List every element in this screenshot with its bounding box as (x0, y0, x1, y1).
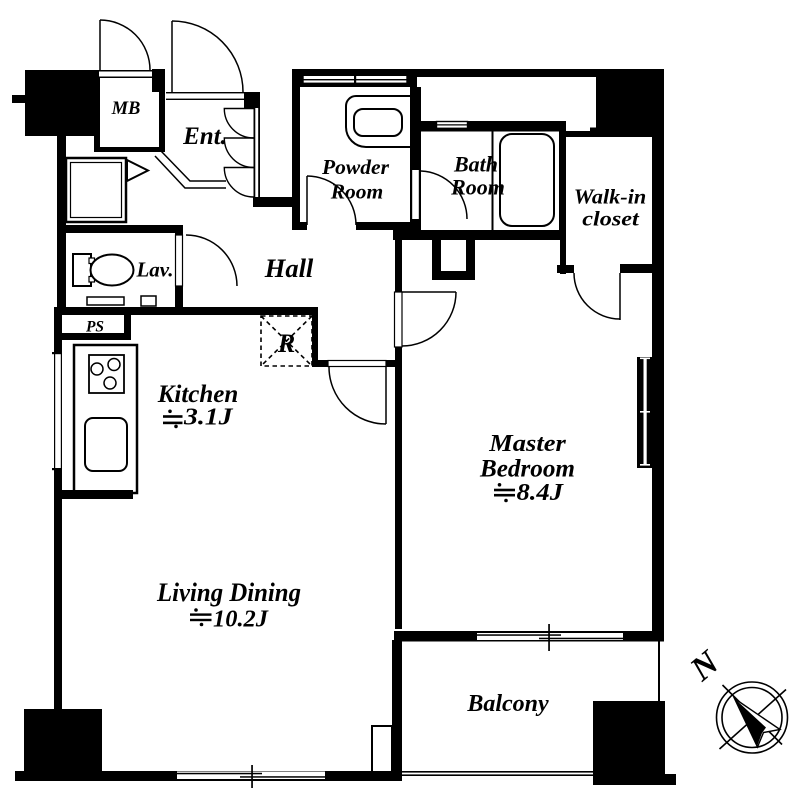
svg-text:R: R (277, 329, 295, 358)
svg-text:3.1J: 3.1J (183, 405, 234, 431)
svg-text:Walk-in: Walk-in (574, 185, 647, 209)
svg-text:Hall: Hall (264, 253, 314, 283)
svg-text:MB: MB (111, 99, 141, 119)
svg-text:Lav.: Lav. (135, 258, 173, 282)
svg-text:Powder: Powder (321, 155, 390, 179)
svg-text:Ent.: Ent. (182, 123, 227, 150)
svg-text:closet: closet (582, 207, 640, 231)
svg-text:Room: Room (450, 175, 505, 200)
svg-text:Bedroom: Bedroom (479, 456, 575, 483)
svg-text:Bath: Bath (453, 152, 498, 177)
svg-text:Room: Room (330, 180, 384, 204)
svg-text:PS: PS (86, 319, 104, 336)
svg-text:Living Dining: Living Dining (156, 577, 301, 607)
svg-text:8.4J: 8.4J (517, 480, 565, 506)
svg-text:Master: Master (488, 431, 566, 457)
svg-text:Balcony: Balcony (466, 691, 549, 717)
svg-text:10.2J: 10.2J (213, 607, 269, 633)
